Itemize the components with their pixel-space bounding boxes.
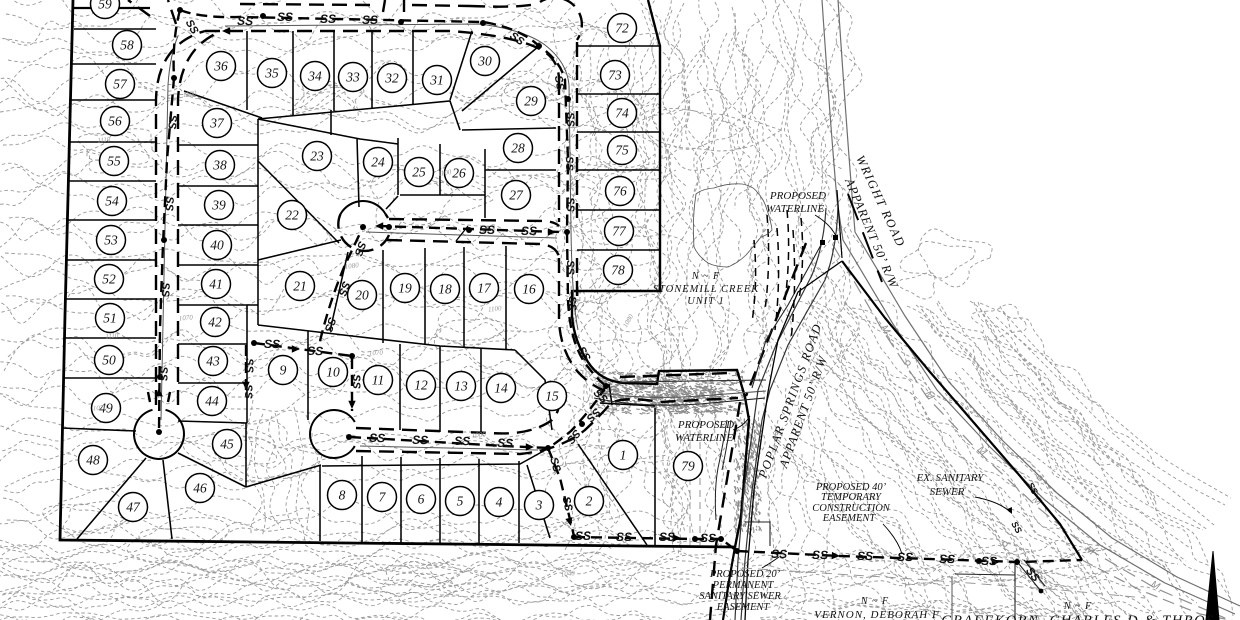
- svg-text:PROPOSED 20’: PROPOSED 20’: [709, 569, 781, 580]
- svg-text:WATERLINE: WATERLINE: [766, 203, 824, 215]
- svg-text:SS: SS: [857, 549, 873, 563]
- svg-text:54: 54: [105, 194, 119, 209]
- svg-text:SS: SS: [897, 550, 913, 564]
- svg-text:15: 15: [545, 389, 559, 404]
- svg-text:SS: SS: [812, 548, 828, 562]
- svg-text:72: 72: [615, 21, 629, 36]
- svg-text:3: 3: [535, 498, 543, 513]
- svg-text:32: 32: [384, 71, 399, 86]
- svg-text:SS: SS: [479, 223, 495, 237]
- svg-text:EASEMENT: EASEMENT: [716, 602, 771, 613]
- svg-text:16: 16: [522, 282, 536, 297]
- svg-text:SS: SS: [307, 344, 323, 359]
- svg-text:PROPOSED: PROPOSED: [677, 419, 734, 431]
- svg-text:44: 44: [205, 394, 219, 409]
- svg-text:SS: SS: [659, 530, 675, 544]
- svg-text:29: 29: [524, 94, 538, 109]
- svg-text:SS: SS: [981, 554, 997, 568]
- svg-text:GRAFFKORN, CHARLES D & THR: GRAFFKORN, CHARLES D & THROS: [941, 613, 1215, 620]
- svg-text:58: 58: [120, 38, 134, 53]
- svg-text:77: 77: [612, 224, 627, 239]
- svg-text:SS: SS: [350, 374, 362, 389]
- svg-text:59: 59: [98, 0, 112, 12]
- svg-text:76: 76: [613, 184, 627, 199]
- svg-text:56: 56: [108, 114, 122, 129]
- svg-text:1070: 1070: [93, 403, 108, 412]
- svg-text:1110: 1110: [97, 135, 111, 144]
- svg-text:5: 5: [457, 494, 464, 509]
- svg-text:12: 12: [414, 378, 428, 393]
- svg-text:1100: 1100: [488, 304, 503, 313]
- svg-text:55: 55: [107, 154, 121, 169]
- svg-text:27: 27: [509, 188, 524, 203]
- svg-text:SS: SS: [454, 434, 470, 449]
- svg-text:SS: SS: [700, 531, 716, 545]
- svg-text:14: 14: [494, 381, 508, 396]
- svg-text:75: 75: [615, 143, 629, 158]
- svg-text:6: 6: [418, 492, 425, 507]
- svg-text:SS: SS: [277, 10, 293, 24]
- svg-text:53: 53: [104, 233, 118, 248]
- svg-text:4: 4: [496, 495, 503, 510]
- svg-text:79: 79: [681, 459, 695, 474]
- svg-text:73: 73: [608, 68, 622, 83]
- svg-text:SS: SS: [264, 337, 280, 351]
- svg-text:21: 21: [293, 279, 307, 294]
- svg-text:45: 45: [220, 437, 234, 452]
- svg-text:47: 47: [126, 500, 141, 515]
- svg-text:1000: 1000: [472, 430, 487, 439]
- svg-text:51: 51: [103, 311, 117, 326]
- svg-text:1: 1: [620, 448, 627, 463]
- svg-text:SS: SS: [564, 260, 576, 275]
- svg-text:N ~ F: N ~ F: [1063, 601, 1092, 612]
- svg-text:EX. SANITARY: EX. SANITARY: [916, 472, 986, 484]
- svg-text:1110: 1110: [105, 331, 119, 340]
- svg-text:PERMANENT: PERMANENT: [712, 580, 775, 591]
- svg-text:40: 40: [210, 238, 224, 253]
- svg-text:SS: SS: [362, 13, 378, 27]
- svg-text:SS: SS: [242, 384, 254, 399]
- svg-text:STONEMILL CREEK: STONEMILL CREEK: [653, 284, 760, 295]
- svg-text:22: 22: [285, 208, 299, 223]
- svg-text:35: 35: [264, 66, 279, 81]
- svg-text:26: 26: [452, 166, 466, 181]
- svg-text:38: 38: [212, 158, 227, 173]
- svg-text:50: 50: [102, 353, 116, 368]
- svg-text:20: 20: [355, 288, 369, 303]
- svg-text:34: 34: [307, 69, 322, 84]
- svg-text:SEWER: SEWER: [930, 486, 965, 498]
- svg-text:WATERLINE: WATERLINE: [675, 432, 733, 444]
- svg-text:SS: SS: [163, 196, 176, 212]
- svg-text:23: 23: [310, 149, 324, 164]
- svg-text:SS: SS: [521, 224, 537, 238]
- svg-text:N ~ F: N ~ F: [860, 596, 889, 607]
- svg-text:8: 8: [339, 488, 346, 503]
- svg-text:28: 28: [511, 141, 525, 156]
- svg-text:17: 17: [477, 281, 492, 296]
- svg-text:N ~ F: N ~ F: [691, 271, 720, 282]
- svg-text:SS: SS: [616, 530, 632, 544]
- svg-text:48: 48: [86, 453, 100, 468]
- svg-text:37: 37: [209, 116, 225, 131]
- svg-text:36: 36: [213, 59, 228, 74]
- svg-text:SS: SS: [939, 552, 955, 566]
- svg-text:24: 24: [371, 155, 385, 170]
- svg-text:SS: SS: [237, 14, 253, 29]
- svg-text:SS: SS: [497, 436, 513, 451]
- svg-text:SS: SS: [564, 112, 576, 127]
- svg-text:SS: SS: [564, 197, 576, 212]
- svg-text:18: 18: [438, 282, 452, 297]
- svg-text:10: 10: [326, 365, 340, 380]
- svg-text:2: 2: [586, 494, 593, 509]
- svg-text:11: 11: [372, 373, 385, 388]
- svg-text:33: 33: [345, 70, 360, 85]
- svg-text:SANITARY SEWER: SANITARY SEWER: [699, 591, 781, 602]
- svg-text:EASEMENT: EASEMENT: [822, 513, 877, 524]
- svg-text:SS: SS: [243, 358, 255, 373]
- svg-text:1040: 1040: [560, 569, 575, 578]
- svg-text:46: 46: [193, 481, 207, 496]
- svg-text:39: 39: [211, 198, 226, 213]
- svg-text:SS: SS: [412, 433, 428, 448]
- svg-text:41: 41: [209, 277, 223, 292]
- svg-text:TEMPORARY: TEMPORARY: [821, 492, 882, 503]
- svg-text:SS: SS: [563, 156, 575, 171]
- svg-text:SS: SS: [157, 366, 170, 382]
- svg-text:74: 74: [615, 106, 629, 121]
- svg-text:19: 19: [398, 281, 412, 296]
- svg-text:42: 42: [208, 315, 222, 330]
- svg-text:30: 30: [477, 54, 492, 69]
- svg-text:SS: SS: [159, 282, 172, 298]
- svg-text:57: 57: [113, 77, 128, 92]
- svg-text:31: 31: [429, 73, 444, 88]
- svg-text:43: 43: [206, 354, 220, 369]
- svg-text:25: 25: [412, 165, 426, 180]
- svg-text:9: 9: [280, 363, 287, 378]
- svg-text:SS: SS: [320, 12, 336, 26]
- svg-text:VERNON, DEBORAH F: VERNON, DEBORAH F: [814, 609, 939, 620]
- svg-text:SS: SS: [575, 529, 591, 543]
- svg-text:52: 52: [102, 272, 116, 287]
- svg-text:1070: 1070: [179, 313, 194, 322]
- svg-text:5: 5: [1054, 464, 1058, 472]
- svg-text:PROPOSED: PROPOSED: [769, 190, 826, 202]
- svg-text:SS: SS: [165, 114, 178, 130]
- svg-text:78: 78: [611, 263, 625, 278]
- svg-text:SS: SS: [369, 431, 385, 446]
- svg-text:UNIT 1: UNIT 1: [687, 296, 725, 307]
- svg-text:1070: 1070: [369, 349, 384, 358]
- svg-text:SS: SS: [566, 296, 578, 311]
- svg-text:13: 13: [454, 379, 468, 394]
- svg-text:SS: SS: [771, 547, 787, 562]
